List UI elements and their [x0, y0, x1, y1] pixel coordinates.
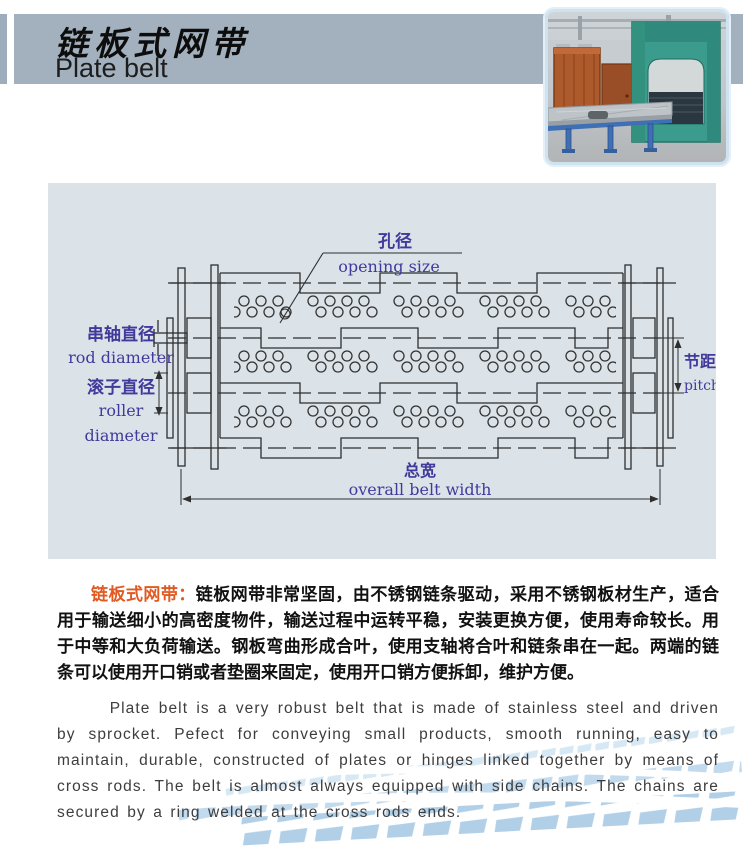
product-photo	[545, 9, 729, 165]
plate-belt-diagram: 孔径 opening size 串轴直径 rod diameter 滚子直径 r…	[48, 183, 716, 559]
label-roller-diameter-zh: 滚子直径	[87, 377, 155, 398]
left-chain	[154, 265, 226, 469]
header-left-stripe	[0, 14, 7, 84]
label-opening-size-en: opening size	[338, 257, 440, 276]
label-pitch-zh: 节距	[684, 352, 716, 371]
english-description: Plate belt is a very robust belt that is…	[57, 696, 719, 826]
label-overall-width-en: overall belt width	[349, 480, 492, 499]
product-photo-scene	[548, 12, 726, 162]
description-block: 链板式网带：链板网带非常坚固，由不锈钢链条驱动，采用不锈钢板材生产，适合用于输送…	[57, 582, 719, 826]
label-rod-diameter-en: rod diameter	[68, 348, 174, 367]
chinese-description-lead: 链板式网带：	[91, 585, 196, 605]
label-opening-size-zh: 孔径	[378, 231, 412, 252]
chinese-description: 链板式网带：链板网带非常坚固，由不锈钢链条驱动，采用不锈钢板材生产，适合用于输送…	[57, 582, 719, 686]
catalog-page: 链板式网带 Plate belt	[0, 0, 743, 846]
label-rod-diameter-zh: 串轴直径	[87, 324, 155, 345]
diagram-panel: 孔径 opening size 串轴直径 rod diameter 滚子直径 r…	[48, 183, 716, 559]
pitch-dimension	[655, 338, 684, 393]
label-roller-en-1: roller	[99, 401, 144, 420]
page-title-en: Plate belt	[55, 53, 168, 84]
label-roller-en-2: diameter	[84, 426, 157, 445]
label-overall-width-zh: 总宽	[404, 461, 436, 480]
label-pitch-en: pitch	[684, 378, 716, 394]
right-chain	[621, 265, 676, 469]
belt-holes	[234, 295, 616, 433]
